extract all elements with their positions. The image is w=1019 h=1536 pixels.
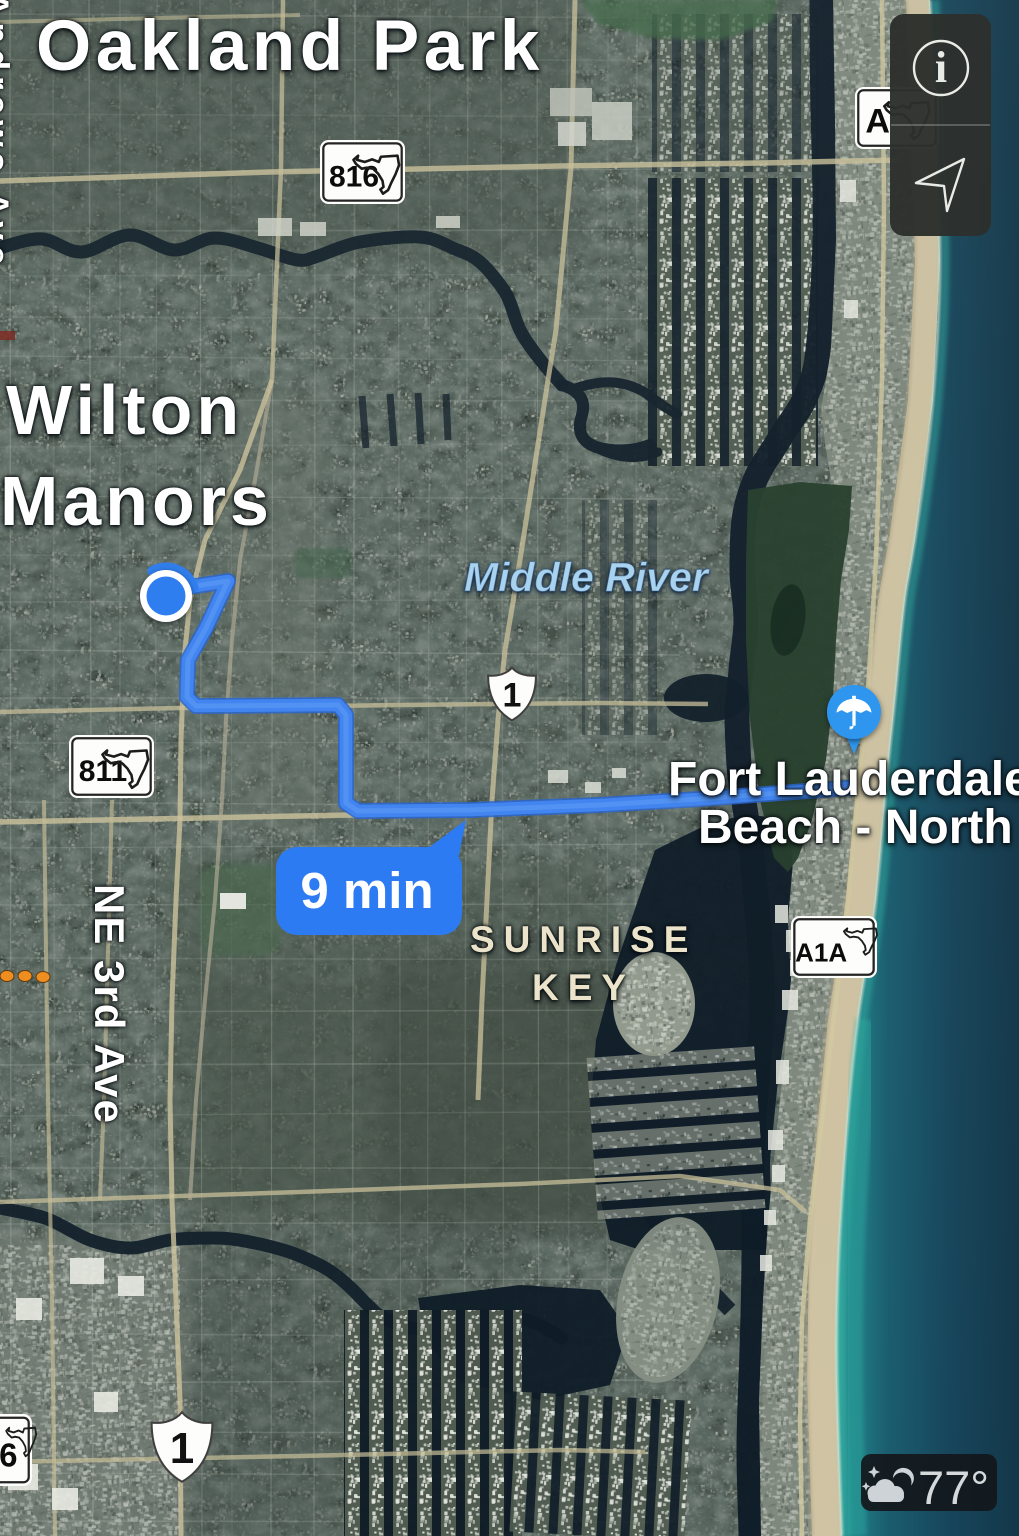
svg-text:816: 816 [329, 161, 379, 194]
svg-text:816: 816 [0, 1437, 18, 1474]
svg-text:1: 1 [503, 676, 522, 714]
svg-text:9 min: 9 min [300, 862, 433, 919]
svg-text:1: 1 [170, 1424, 194, 1473]
svg-text:811: 811 [79, 755, 127, 788]
svg-text:77°: 77° [918, 1461, 989, 1514]
svg-text:A1A: A1A [795, 937, 847, 967]
svg-text:i: i [935, 43, 947, 92]
